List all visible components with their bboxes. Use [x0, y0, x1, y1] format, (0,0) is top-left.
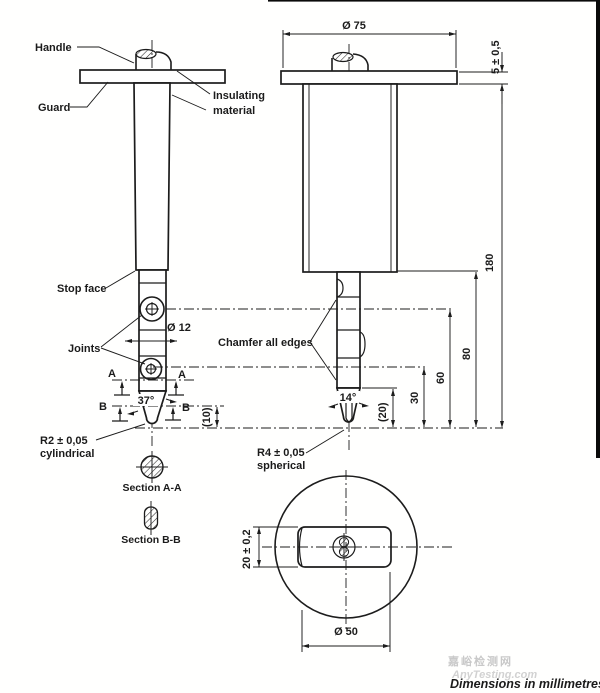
- stop-face-label: Stop face: [57, 283, 107, 295]
- len80-label: 80: [461, 348, 473, 360]
- shaft-front: [134, 83, 170, 270]
- insulating-label-2: material: [213, 105, 255, 117]
- side-stub-shoulder: [353, 54, 368, 71]
- arrowhead: [118, 407, 122, 414]
- arrowhead: [302, 644, 309, 648]
- section-bb-label: Section B-B: [121, 534, 181, 546]
- dia75-ext-lines: [283, 30, 456, 68]
- dimension-60: 60: [435, 310, 452, 427]
- side-stub-hatched-top: [333, 53, 353, 62]
- marker-a-right: A: [178, 369, 186, 381]
- arrowhead: [422, 420, 426, 427]
- dimension-180: 180: [484, 86, 504, 428]
- arrowhead: [283, 32, 290, 36]
- dimension-10ref: (10): [201, 407, 219, 427]
- handle-leader: [77, 47, 134, 63]
- guard-label: Guard: [38, 102, 70, 114]
- test-finger-drawing: Ø 75 5 ± 0,5 180 80 60 30 (20): [0, 0, 600, 693]
- arrowhead: [474, 420, 478, 427]
- arrowhead: [362, 404, 369, 408]
- arrowhead: [257, 560, 261, 567]
- dimension-20ref: (20): [377, 389, 395, 427]
- dia75-label: Ø 75: [342, 20, 366, 32]
- arrowhead: [448, 420, 452, 427]
- scan-edge-right: [596, 0, 600, 458]
- arrowhead: [125, 339, 132, 343]
- arrowhead: [474, 272, 478, 279]
- dimension-80: 80: [461, 272, 478, 427]
- watermark-cn: 嘉峪检测网: [447, 654, 513, 668]
- arrowhead: [449, 32, 456, 36]
- dimension-thickness5: 5 ± 0,5: [459, 40, 508, 104]
- handle-stub-hatched-top: [136, 50, 156, 59]
- dia12-label: Ø 12: [167, 322, 191, 334]
- dia50-label: Ø 50: [334, 626, 358, 638]
- marker-b-right: B: [182, 402, 190, 414]
- guard-leader: [70, 82, 108, 107]
- arrowhead: [174, 381, 178, 388]
- arrowhead: [215, 420, 219, 427]
- section-bb-shape: [145, 507, 158, 529]
- side-view: [281, 44, 457, 450]
- guard-plate-side: [281, 71, 457, 84]
- len60-label: 60: [435, 372, 447, 384]
- arrowhead: [171, 407, 175, 414]
- handle-label: Handle: [35, 42, 72, 54]
- len30-label: 30: [409, 392, 421, 404]
- len20ref-label: (20): [377, 402, 389, 422]
- handle-cylinder: [303, 84, 397, 272]
- arrowhead: [257, 527, 261, 534]
- thickness20-label: 20 ± 0,2: [241, 529, 253, 569]
- r4-leader: [306, 430, 344, 453]
- len10ref-label: (10): [201, 407, 213, 427]
- section-bb-view: Section B-B: [121, 501, 181, 546]
- arrowhead: [328, 405, 335, 409]
- angle37-label: 37°: [138, 395, 155, 407]
- scan-edge-top: [268, 0, 600, 2]
- r4-label-1: R4 ± 0,05: [257, 447, 305, 459]
- stop-face-leader: [106, 271, 135, 288]
- bottom-view: 20 ± 0,2 Ø 50: [241, 470, 455, 652]
- reference-lines: [112, 271, 503, 428]
- section-aa-circle: [141, 456, 163, 478]
- chamfer-leaders: [310, 300, 336, 380]
- arrowhead: [215, 407, 219, 414]
- arrowhead: [500, 421, 504, 428]
- dimension-30: 30: [409, 368, 426, 427]
- r2-label-2: cylindrical: [40, 448, 94, 460]
- r4-label-2: spherical: [257, 460, 305, 472]
- arrowhead: [127, 412, 134, 416]
- r2-label-1: R2 ± 0,05: [40, 435, 88, 447]
- dimension-thickness20: 20 ± 0,2: [241, 527, 298, 569]
- joints-label: Joints: [68, 343, 100, 355]
- angle14-label: 14°: [340, 392, 357, 404]
- arrowhead: [383, 644, 390, 648]
- marker-b-left: B: [99, 401, 107, 413]
- arrowhead: [422, 368, 426, 375]
- insulating-label-1: Insulating: [213, 90, 265, 102]
- arrowhead: [170, 400, 177, 404]
- arrowhead: [170, 339, 177, 343]
- front-view: [80, 40, 225, 448]
- handle-stub-shoulder: [156, 52, 171, 70]
- footer-note: Dimensions in millimetres: [450, 677, 600, 691]
- chamfer-label: Chamfer all edges: [218, 337, 313, 349]
- len180-label: 180: [484, 254, 496, 272]
- section-aa-view: Section A-A: [122, 451, 182, 494]
- arrowhead: [391, 389, 395, 396]
- marker-a-left: A: [108, 368, 116, 380]
- technical-drawing-page: Ø 75 5 ± 0,5 180 80 60 30 (20): [0, 0, 600, 693]
- thickness5-label: 5 ± 0,5: [490, 40, 502, 74]
- section-aa-label: Section A-A: [122, 482, 182, 494]
- arrowhead: [391, 420, 395, 427]
- guard-plate-front: [80, 70, 225, 83]
- dimension-dia75: Ø 75: [283, 20, 456, 68]
- arrowhead: [120, 381, 124, 388]
- arrowhead: [448, 310, 452, 317]
- r2-leader: [96, 424, 145, 440]
